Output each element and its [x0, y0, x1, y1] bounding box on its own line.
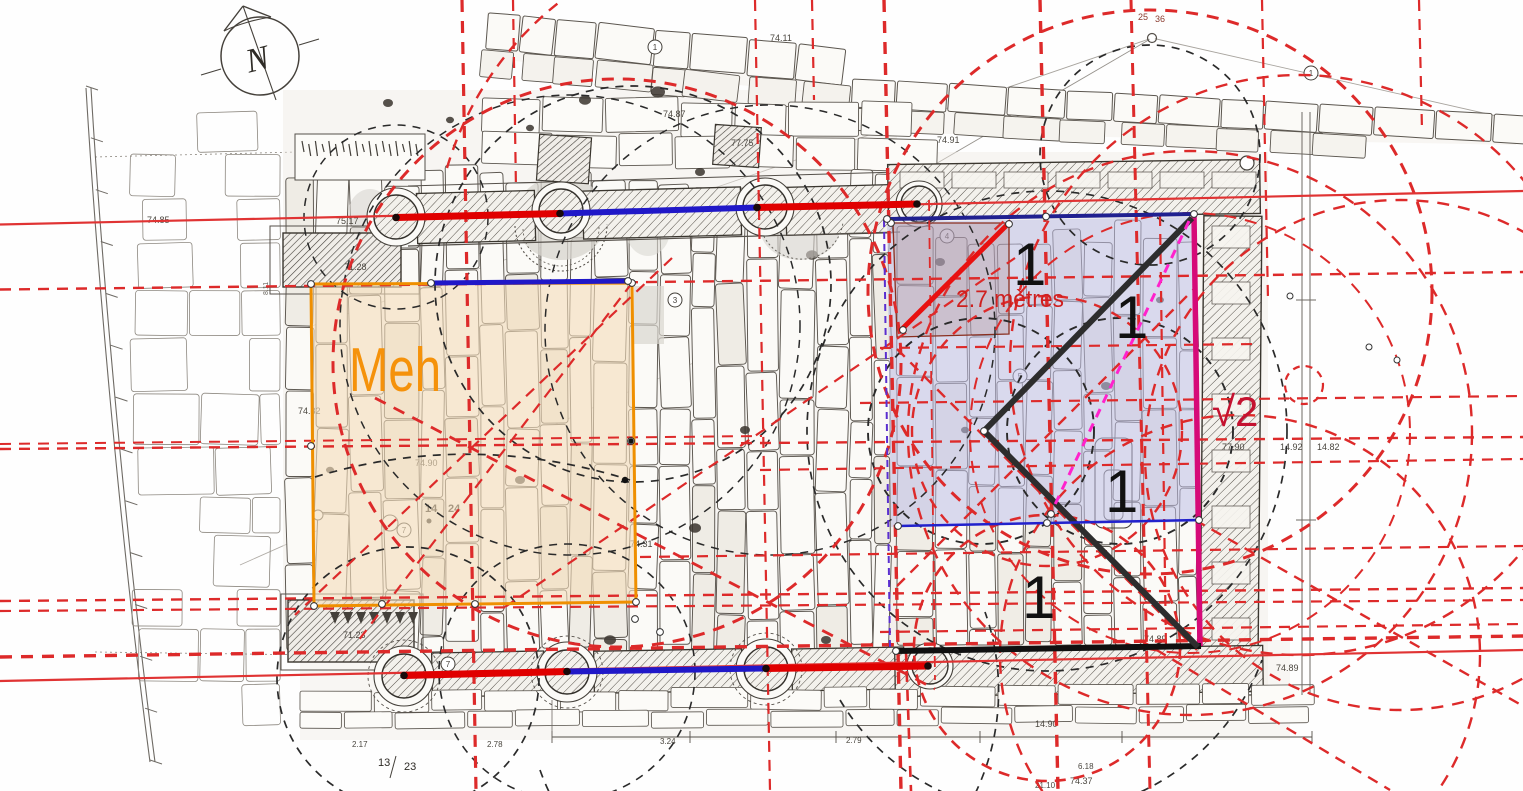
- svg-text:13: 13: [378, 757, 390, 769]
- svg-text:√2: √2: [1212, 388, 1258, 435]
- svg-text:1: 1: [1022, 564, 1055, 631]
- svg-text:25: 25: [1138, 12, 1148, 22]
- svg-text:77.75: 77.75: [731, 138, 754, 148]
- svg-text:1: 1: [653, 43, 658, 52]
- svg-text:2.7 mètres: 2.7 mètres: [956, 286, 1064, 313]
- svg-text:1: 1: [1115, 284, 1148, 351]
- svg-text:14.82: 14.82: [1317, 442, 1340, 452]
- svg-text:74.87: 74.87: [663, 109, 686, 119]
- svg-text:1: 1: [1309, 69, 1314, 78]
- svg-text:Meh: Meh: [349, 336, 441, 405]
- svg-text:74.91: 74.91: [937, 135, 960, 145]
- svg-text:2.17: 2.17: [352, 740, 368, 749]
- svg-text:6.18: 6.18: [1078, 762, 1094, 771]
- svg-text:3.24: 3.24: [660, 737, 676, 746]
- svg-text:77.90: 77.90: [1222, 442, 1245, 452]
- svg-text:3: 3: [673, 296, 678, 305]
- svg-text:14.92: 14.92: [1280, 442, 1303, 452]
- svg-text:7: 7: [446, 660, 451, 669]
- svg-text:36: 36: [1155, 14, 1165, 24]
- svg-text:8.11: 8.11: [263, 282, 270, 295]
- svg-text:74.11: 74.11: [770, 33, 792, 43]
- svg-text:23: 23: [404, 761, 416, 773]
- svg-text:1: 1: [1105, 458, 1138, 525]
- svg-text:74.89: 74.89: [1276, 663, 1299, 673]
- svg-text:2.79: 2.79: [846, 736, 862, 745]
- svg-text:2.78: 2.78: [487, 740, 503, 749]
- svg-text:14.90: 14.90: [1035, 719, 1058, 729]
